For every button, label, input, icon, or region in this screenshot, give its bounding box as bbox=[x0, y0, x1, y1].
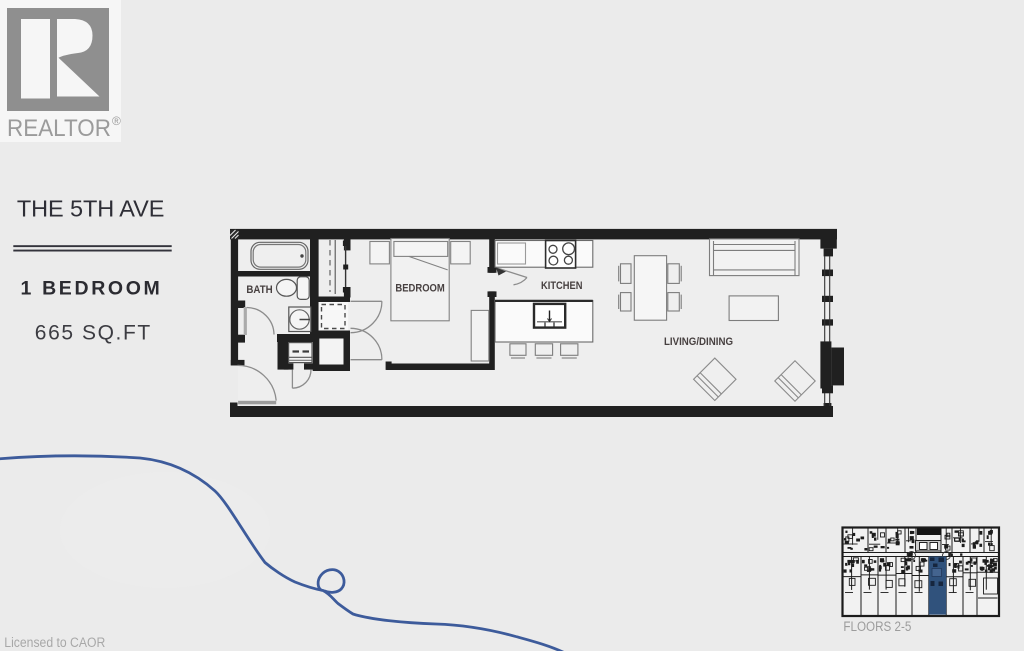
svg-text:BEDROOM: BEDROOM bbox=[395, 282, 444, 294]
svg-text:REALTOR: REALTOR bbox=[7, 115, 111, 142]
svg-text:665 SQ.FT: 665 SQ.FT bbox=[35, 322, 151, 345]
svg-text:THE 5TH AVE: THE 5TH AVE bbox=[17, 196, 165, 222]
svg-text:Licensed to CAOR: Licensed to CAOR bbox=[4, 635, 105, 650]
svg-text:®: ® bbox=[112, 114, 121, 128]
svg-text:KITCHEN: KITCHEN bbox=[541, 280, 583, 292]
svg-text:LIVING/DINING: LIVING/DINING bbox=[664, 336, 733, 348]
svg-text:FLOORS 2-5: FLOORS 2-5 bbox=[843, 619, 911, 634]
svg-text:BATH: BATH bbox=[246, 284, 272, 296]
